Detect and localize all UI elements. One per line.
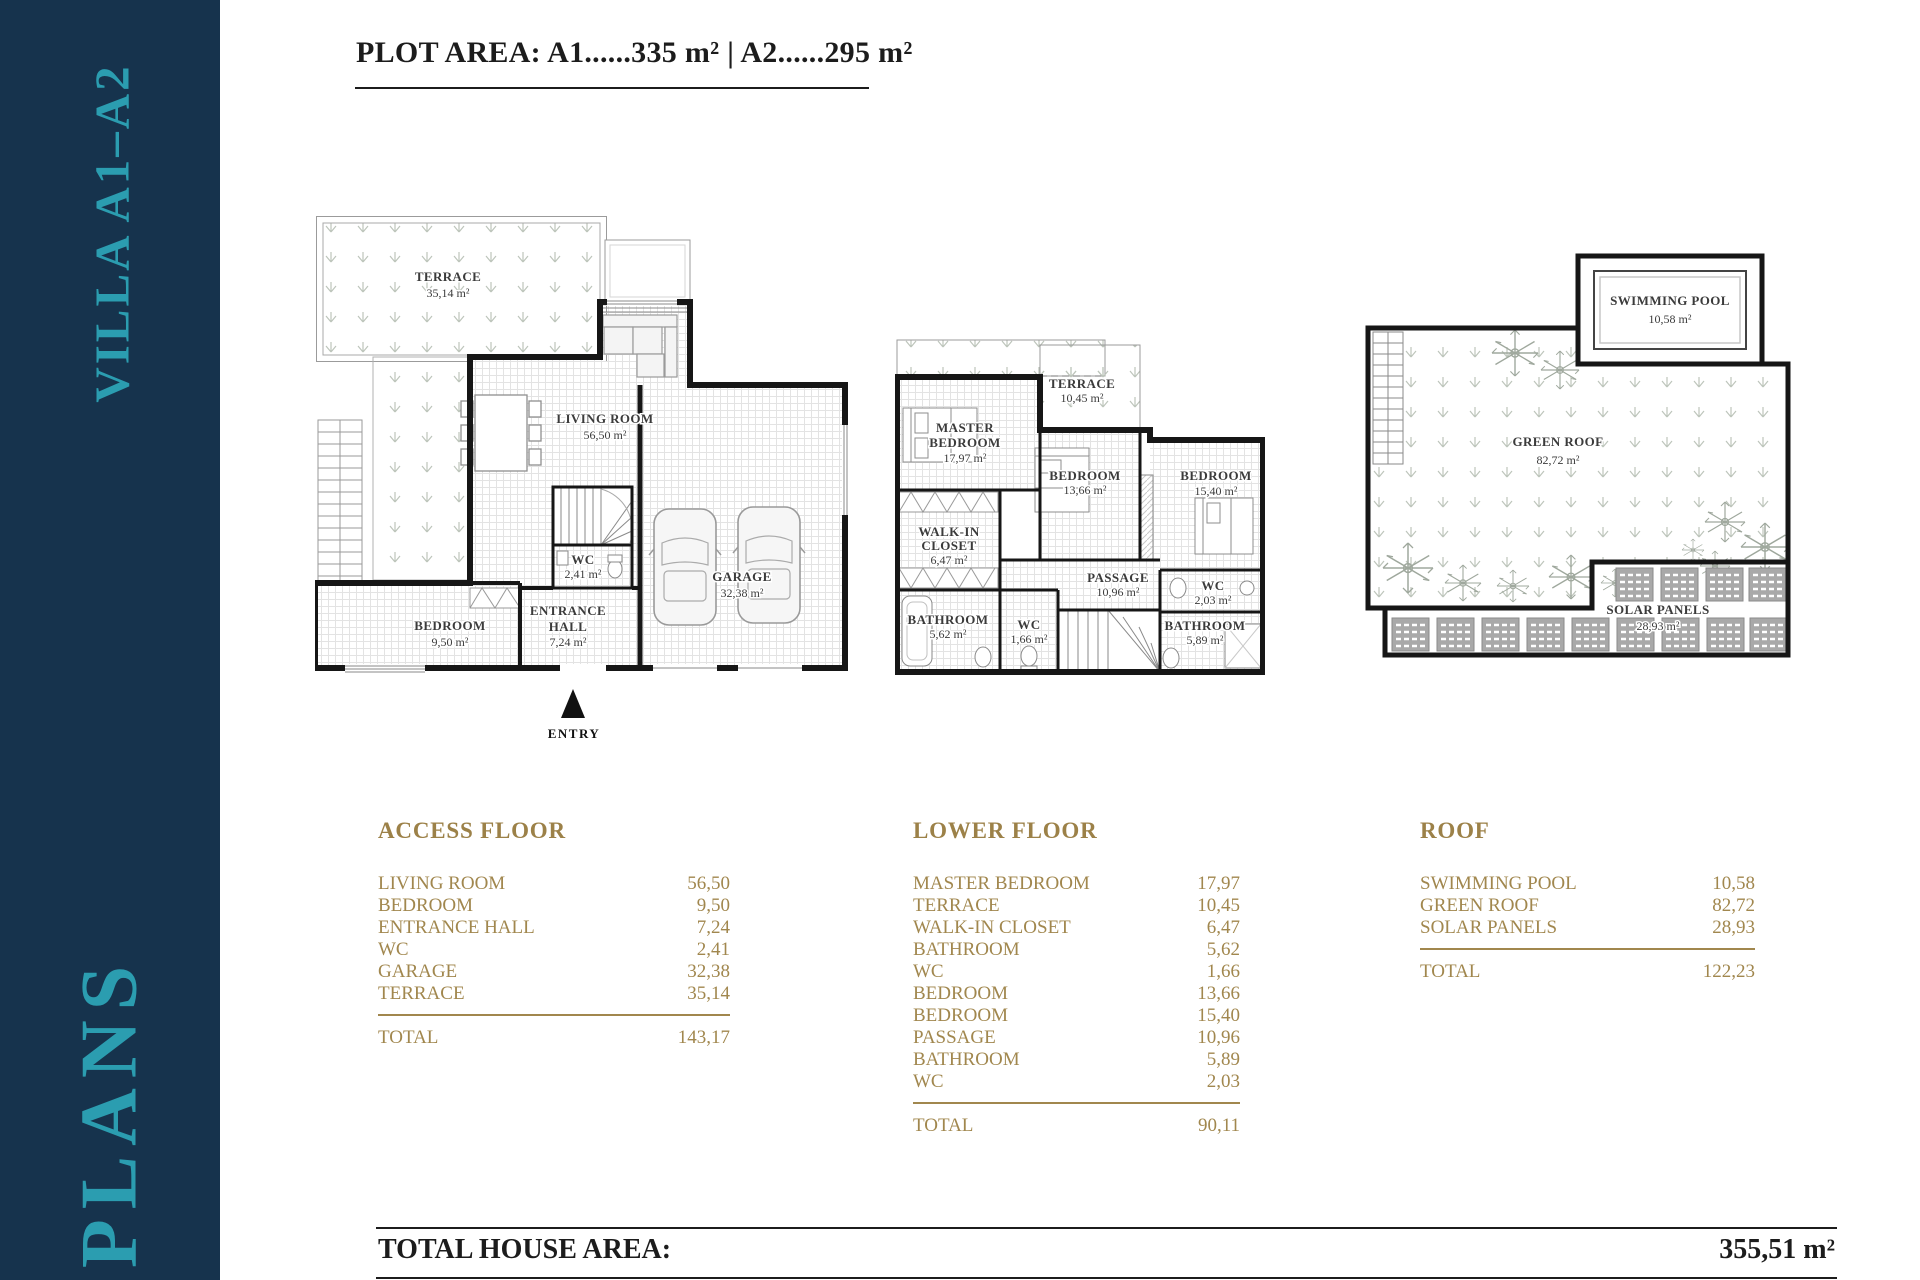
- footer-rule-bottom: [376, 1277, 1837, 1279]
- table-total-row: TOTAL90,11: [913, 1115, 1240, 1137]
- row-value: 35,14: [687, 983, 730, 1005]
- table-row: BATHROOM5,89: [913, 1049, 1240, 1071]
- row-value: 2,41: [697, 939, 730, 961]
- entry-label: ENTRY: [548, 726, 601, 741]
- room-label-passage: PASSAGE: [1087, 570, 1149, 585]
- table-row: BEDROOM9,50: [378, 895, 730, 917]
- row-value: 5,89: [1207, 1049, 1240, 1071]
- room-label-bathroom1: BATHROOM: [908, 612, 989, 627]
- lower-stairs: [1058, 610, 1160, 672]
- wc1-fixtures: [1021, 646, 1037, 672]
- table-row: TERRACE10,45: [913, 895, 1240, 917]
- interior-stairs: [553, 487, 632, 545]
- room-area-passage: 10,96 m²: [1097, 585, 1140, 599]
- table-row: SOLAR PANELS28,93: [1420, 917, 1755, 939]
- room-label-master-1: MASTER: [936, 420, 994, 435]
- room-label-l-terrace: TERRACE: [1049, 376, 1115, 391]
- total-value: 90,11: [1198, 1115, 1240, 1137]
- row-value: 9,50: [697, 895, 730, 917]
- room-label-terrace: TERRACE: [415, 269, 481, 284]
- room-label-master-2: BEDROOM: [929, 435, 1000, 450]
- row-value: 6,47: [1207, 917, 1240, 939]
- table-separator: [1420, 948, 1755, 950]
- row-label: TERRACE: [378, 983, 465, 1005]
- lower-floor-table-title: LOWER FLOOR: [913, 818, 1240, 844]
- room-area-bedroom: 9,50 m²: [432, 635, 469, 649]
- row-label: SWIMMING POOL: [1420, 873, 1577, 895]
- total-value: 122,23: [1703, 961, 1755, 983]
- garden-strip: [373, 357, 470, 580]
- row-value: 17,97: [1197, 873, 1240, 895]
- row-value: 56,50: [687, 873, 730, 895]
- room-label-bathroom2: BATHROOM: [1165, 618, 1246, 633]
- row-label: ENTRANCE HALL: [378, 917, 535, 939]
- room-area-l-terrace: 10,45 m²: [1061, 391, 1104, 405]
- room-label-wc2: WC: [1201, 578, 1224, 593]
- row-label: LIVING ROOM: [378, 873, 505, 895]
- room-area-terrace: 35,14 m²: [427, 286, 470, 300]
- row-value: 10,96: [1197, 1027, 1240, 1049]
- row-value: 15,40: [1197, 1005, 1240, 1027]
- room-label-wc1: WC: [1017, 617, 1040, 632]
- row-label: BATHROOM: [913, 1049, 1020, 1071]
- row-value: 2,03: [1207, 1071, 1240, 1093]
- room-area-bathroom1: 5,62 m²: [930, 627, 967, 641]
- room-label-bedroom1: BEDROOM: [1049, 468, 1120, 483]
- row-label: TERRACE: [913, 895, 1000, 917]
- room-label-walkin-1: WALK-IN: [918, 524, 980, 539]
- row-value: 7,24: [697, 917, 730, 939]
- row-value: 10,45: [1197, 895, 1240, 917]
- table-row: WALK-IN CLOSET6,47: [913, 917, 1240, 939]
- table-separator: [378, 1014, 730, 1016]
- room-label-bedroom2: BEDROOM: [1180, 468, 1251, 483]
- row-value: 1,66: [1207, 961, 1240, 983]
- total-label: TOTAL: [378, 1027, 438, 1049]
- row-value: 10,58: [1712, 873, 1755, 895]
- roof-table-title: ROOF: [1420, 818, 1755, 844]
- car-2: [733, 507, 805, 623]
- room-area-living: 56,50 m²: [584, 428, 627, 442]
- row-value: 82,72: [1712, 895, 1755, 917]
- roof-ladder: [1373, 332, 1403, 464]
- total-house-area-label: TOTAL HOUSE AREA:: [378, 1234, 671, 1266]
- row-label: BEDROOM: [913, 983, 1008, 1005]
- outdoor-stairs: [318, 420, 362, 583]
- row-label: BATHROOM: [913, 939, 1020, 961]
- row-label: GARAGE: [378, 961, 457, 983]
- total-house-area: TOTAL HOUSE AREA: 355,51 m²: [378, 1234, 1835, 1266]
- room-area-wc: 2,41 m²: [565, 567, 602, 581]
- bed-2: [1195, 498, 1253, 554]
- table-row: TERRACE35,14: [378, 983, 730, 1005]
- room-area-bedroom1: 13,66 m²: [1064, 483, 1107, 497]
- table-row: GARAGE32,38: [378, 961, 730, 983]
- room-label-walkin-2: CLOSET: [921, 538, 976, 553]
- lower-floor-table: LOWER FLOOR MASTER BEDROOM17,97 TERRACE1…: [913, 818, 1240, 1137]
- room-area-bedroom2: 15,40 m²: [1195, 484, 1238, 498]
- room-label-entrance-1: ENTRANCE: [530, 603, 606, 618]
- sidebar-section-title: PLANS: [65, 956, 156, 1268]
- room-label-wc: WC: [571, 552, 594, 567]
- room-area-bathroom2: 5,89 m²: [1187, 633, 1224, 647]
- table-total-row: TOTAL143,17: [378, 1027, 730, 1049]
- room-area-solar: 28,93 m²: [1637, 619, 1680, 633]
- room-area-green: 82,72 m²: [1537, 453, 1580, 467]
- header-rule: [355, 87, 869, 89]
- table-row: WC1,66: [913, 961, 1240, 983]
- roof-table: ROOF SWIMMING POOL10,58 GREEN ROOF82,72 …: [1420, 818, 1755, 983]
- car-1: [649, 509, 721, 625]
- table-row: GREEN ROOF82,72: [1420, 895, 1755, 917]
- table-separator: [913, 1102, 1240, 1104]
- row-label: WC: [913, 961, 944, 983]
- room-area-wc2: 2,03 m²: [1195, 593, 1232, 607]
- table-row: PASSAGE10,96: [913, 1027, 1240, 1049]
- roof-overhang: [605, 240, 690, 302]
- room-label-green: GREEN ROOF: [1512, 434, 1603, 449]
- room-area-garage: 32,38 m²: [721, 586, 764, 600]
- room-label-entrance-2: HALL: [549, 619, 587, 634]
- total-label: TOTAL: [1420, 961, 1480, 983]
- row-label: GREEN ROOF: [1420, 895, 1539, 917]
- floor-plan-lower: TERRACE 10,45 m² MASTER BEDROOM 17,97 m²…: [895, 330, 1265, 675]
- entry-arrow-icon: [561, 689, 585, 718]
- room-area-master: 17,97 m²: [944, 451, 987, 465]
- bedroom-wardrobe: [470, 588, 520, 608]
- row-value: 5,62: [1207, 939, 1240, 961]
- floor-plan-access: TERRACE 35,14 m² LIVING ROOM 56,50 m² WC…: [315, 215, 850, 755]
- table-row: ENTRANCE HALL7,24: [378, 917, 730, 939]
- table-total-row: TOTAL122,23: [1420, 961, 1755, 983]
- room-area-entrance: 7,24 m²: [550, 635, 587, 649]
- sidebar: VILLA A1–A2 PLANS: [0, 0, 220, 1280]
- sidebar-project-title: VILLA A1–A2: [84, 63, 141, 402]
- table-row: LIVING ROOM56,50: [378, 873, 730, 895]
- room-area-pool: 10,58 m²: [1649, 312, 1692, 326]
- table-row: WC2,41: [378, 939, 730, 961]
- room-label-living: LIVING ROOM: [556, 411, 653, 426]
- table-row: BEDROOM13,66: [913, 983, 1240, 1005]
- row-label: MASTER BEDROOM: [913, 873, 1090, 895]
- row-label: WC: [378, 939, 409, 961]
- row-value: 32,38: [687, 961, 730, 983]
- room-label-bedroom: BEDROOM: [414, 618, 485, 633]
- room-label-pool: SWIMMING POOL: [1610, 293, 1730, 308]
- row-label: WC: [913, 1071, 944, 1093]
- row-label: PASSAGE: [913, 1027, 996, 1049]
- row-value: 28,93: [1712, 917, 1755, 939]
- total-label: TOTAL: [913, 1115, 973, 1137]
- table-row: BATHROOM5,62: [913, 939, 1240, 961]
- total-house-area-value: 355,51 m²: [1719, 1234, 1835, 1266]
- row-value: 13,66: [1197, 983, 1240, 1005]
- access-floor-table: ACCESS FLOOR LIVING ROOM56,50 BEDROOM9,5…: [378, 818, 730, 1049]
- row-label: SOLAR PANELS: [1420, 917, 1557, 939]
- shaft: [1140, 475, 1153, 560]
- table-row: MASTER BEDROOM17,97: [913, 873, 1240, 895]
- room-area-wc1: 1,66 m²: [1011, 632, 1048, 646]
- floor-plan-roof: SWIMMING POOL 10,58 m² GREEN ROOF 82,72 …: [1363, 250, 1793, 662]
- row-label: WALK-IN CLOSET: [913, 917, 1071, 939]
- row-label: BEDROOM: [378, 895, 473, 917]
- row-label: BEDROOM: [913, 1005, 1008, 1027]
- room-area-walkin: 6,47 m²: [931, 553, 968, 567]
- room-label-solar: SOLAR PANELS: [1606, 602, 1709, 617]
- access-floor-table-title: ACCESS FLOOR: [378, 818, 730, 844]
- swimming-pool: [1578, 256, 1762, 364]
- table-row: SWIMMING POOL10,58: [1420, 873, 1755, 895]
- footer-rule-top: [376, 1227, 1837, 1229]
- plot-area-heading: PLOT AREA: A1......335 m² | A2......295 …: [356, 36, 913, 70]
- table-row: WC2,03: [913, 1071, 1240, 1093]
- total-value: 143,17: [678, 1027, 730, 1049]
- room-label-garage: GARAGE: [712, 569, 771, 584]
- table-row: BEDROOM15,40: [913, 1005, 1240, 1027]
